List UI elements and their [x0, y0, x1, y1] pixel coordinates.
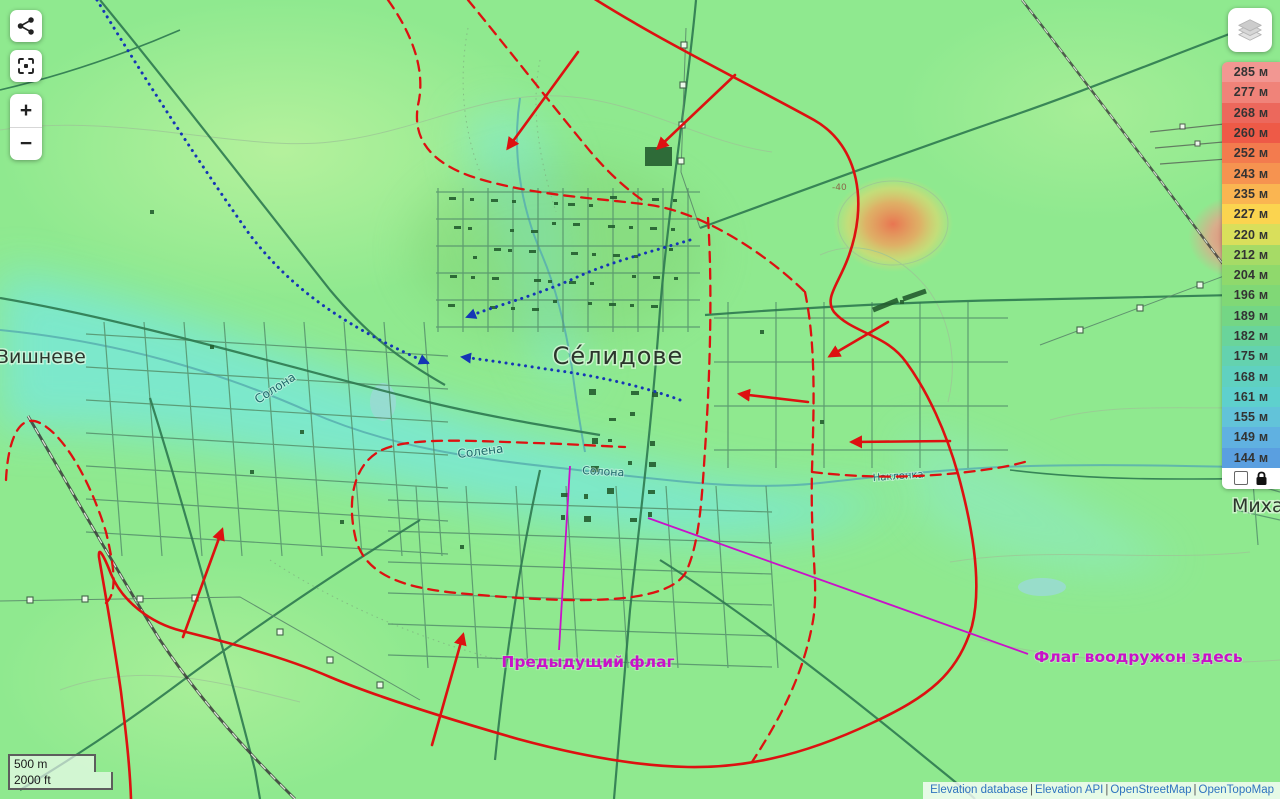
attribution-links: Elevation database|Elevation API|OpenStr… [930, 784, 1274, 796]
legend-item: 268 м [1222, 103, 1280, 123]
legend-item: 235 м [1222, 184, 1280, 204]
river-label-solona-2: Солона [582, 464, 625, 479]
attack-arrow [852, 441, 950, 442]
legend-item: 212 м [1222, 245, 1280, 265]
attribution-separator: | [1105, 784, 1108, 796]
elevation-legend-items: 285 м277 м268 м260 м252 м243 м235 м227 м… [1222, 62, 1280, 468]
attribution-link[interactable]: Elevation database [930, 784, 1028, 796]
elevation-legend: 285 м277 м268 м260 м252 м243 м235 м227 м… [1222, 62, 1280, 489]
village-label-mykhailivka: Михай [1232, 495, 1280, 517]
previous-flag-label: Предыдущий флаг [501, 653, 674, 671]
zoom-control: + − [10, 94, 42, 160]
legend-item: 144 м [1222, 448, 1280, 468]
legend-item: 149 м [1222, 427, 1280, 447]
attribution-link[interactable]: OpenTopoMap [1199, 784, 1274, 796]
legend-item: 252 м [1222, 143, 1280, 163]
legend-footer [1222, 468, 1280, 489]
legend-item: 196 м [1222, 285, 1280, 305]
legend-item: 168 м [1222, 366, 1280, 386]
legend-item: 204 м [1222, 265, 1280, 285]
flag-here-label: Флаг воодружон здесь [1034, 648, 1243, 666]
legend-item: 182 м [1222, 326, 1280, 346]
locate-icon [16, 56, 36, 76]
legend-item: 155 м [1222, 407, 1280, 427]
legend-item: 189 м [1222, 306, 1280, 326]
zoom-in-button[interactable]: + [10, 94, 42, 128]
legend-item: 175 м [1222, 346, 1280, 366]
legend-checkbox[interactable] [1234, 471, 1248, 485]
attribution-link[interactable]: OpenStreetMap [1110, 784, 1191, 796]
legend-item: 227 м [1222, 204, 1280, 224]
attribution-separator: | [1030, 784, 1033, 796]
map-application: Се́лидове Вишневе Михай Солона Солена Со… [0, 0, 1280, 799]
locate-button[interactable] [10, 50, 42, 82]
legend-item: 220 м [1222, 224, 1280, 244]
contour-mark-label: -40 [832, 183, 847, 193]
map-canvas[interactable]: Се́лидове Вишневе Михай Солона Солена Со… [0, 0, 1280, 799]
attribution-link[interactable]: Elevation API [1035, 784, 1103, 796]
scale-control: 500 m 2000 ft [8, 754, 113, 790]
attribution-separator: | [1194, 784, 1197, 796]
zoom-out-button[interactable]: − [10, 128, 42, 161]
layers-icon [1235, 16, 1265, 44]
lock-icon[interactable] [1255, 471, 1268, 486]
legend-item: 161 м [1222, 387, 1280, 407]
legend-item: 285 м [1222, 62, 1280, 82]
share-icon [15, 15, 37, 37]
share-button[interactable] [10, 10, 42, 42]
layers-button[interactable] [1228, 8, 1272, 52]
scale-metric: 500 m [8, 754, 96, 772]
legend-item: 243 м [1222, 163, 1280, 183]
attribution-bar: Elevation database|Elevation API|OpenStr… [923, 782, 1280, 799]
village-label-vyshneve: Вишневе [0, 346, 86, 368]
scale-imperial: 2000 ft [8, 772, 113, 790]
town-label-selydove: Се́лидове [553, 342, 684, 370]
legend-item: 260 м [1222, 123, 1280, 143]
legend-item: 277 м [1222, 82, 1280, 102]
